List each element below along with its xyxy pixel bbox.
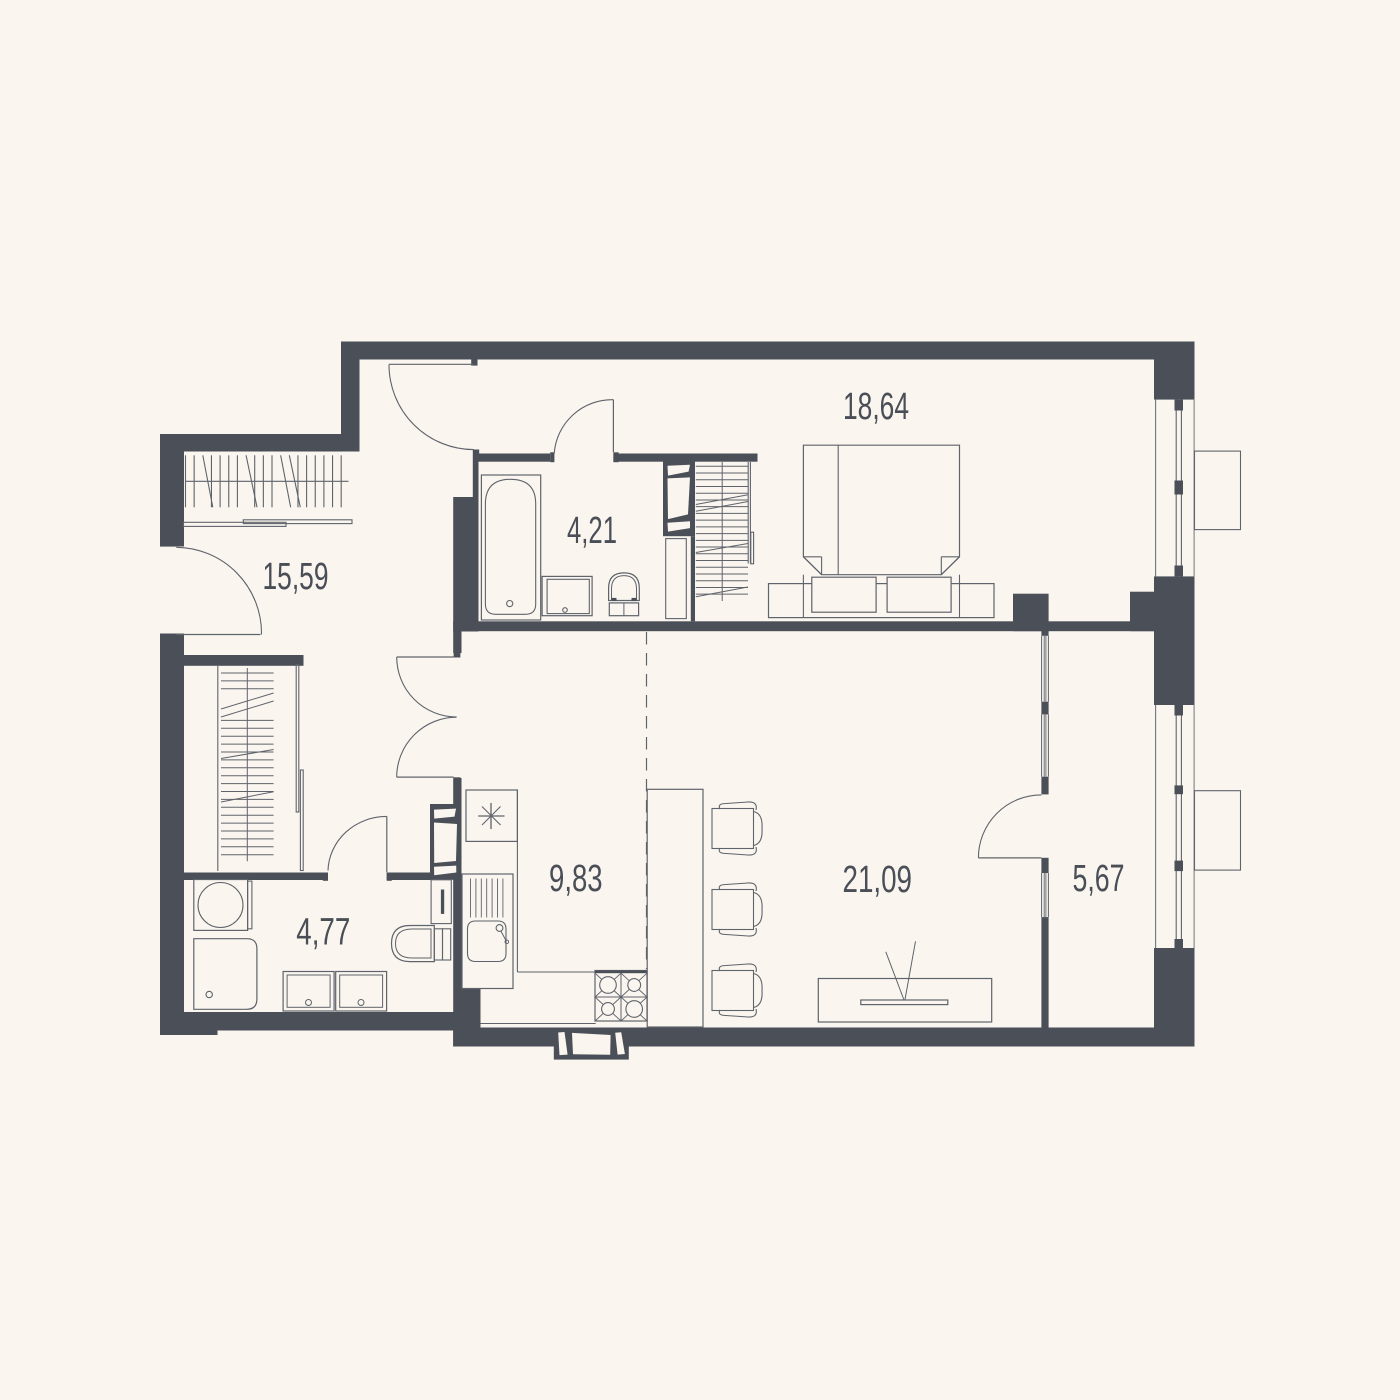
svg-text:18,64: 18,64: [843, 386, 909, 428]
svg-text:21,09: 21,09: [843, 859, 913, 901]
svg-text:4,77: 4,77: [296, 912, 350, 954]
svg-text:9,83: 9,83: [549, 858, 603, 900]
svg-text:4,21: 4,21: [567, 510, 617, 552]
svg-text:15,59: 15,59: [263, 556, 329, 598]
svg-text:5,67: 5,67: [1073, 858, 1125, 900]
